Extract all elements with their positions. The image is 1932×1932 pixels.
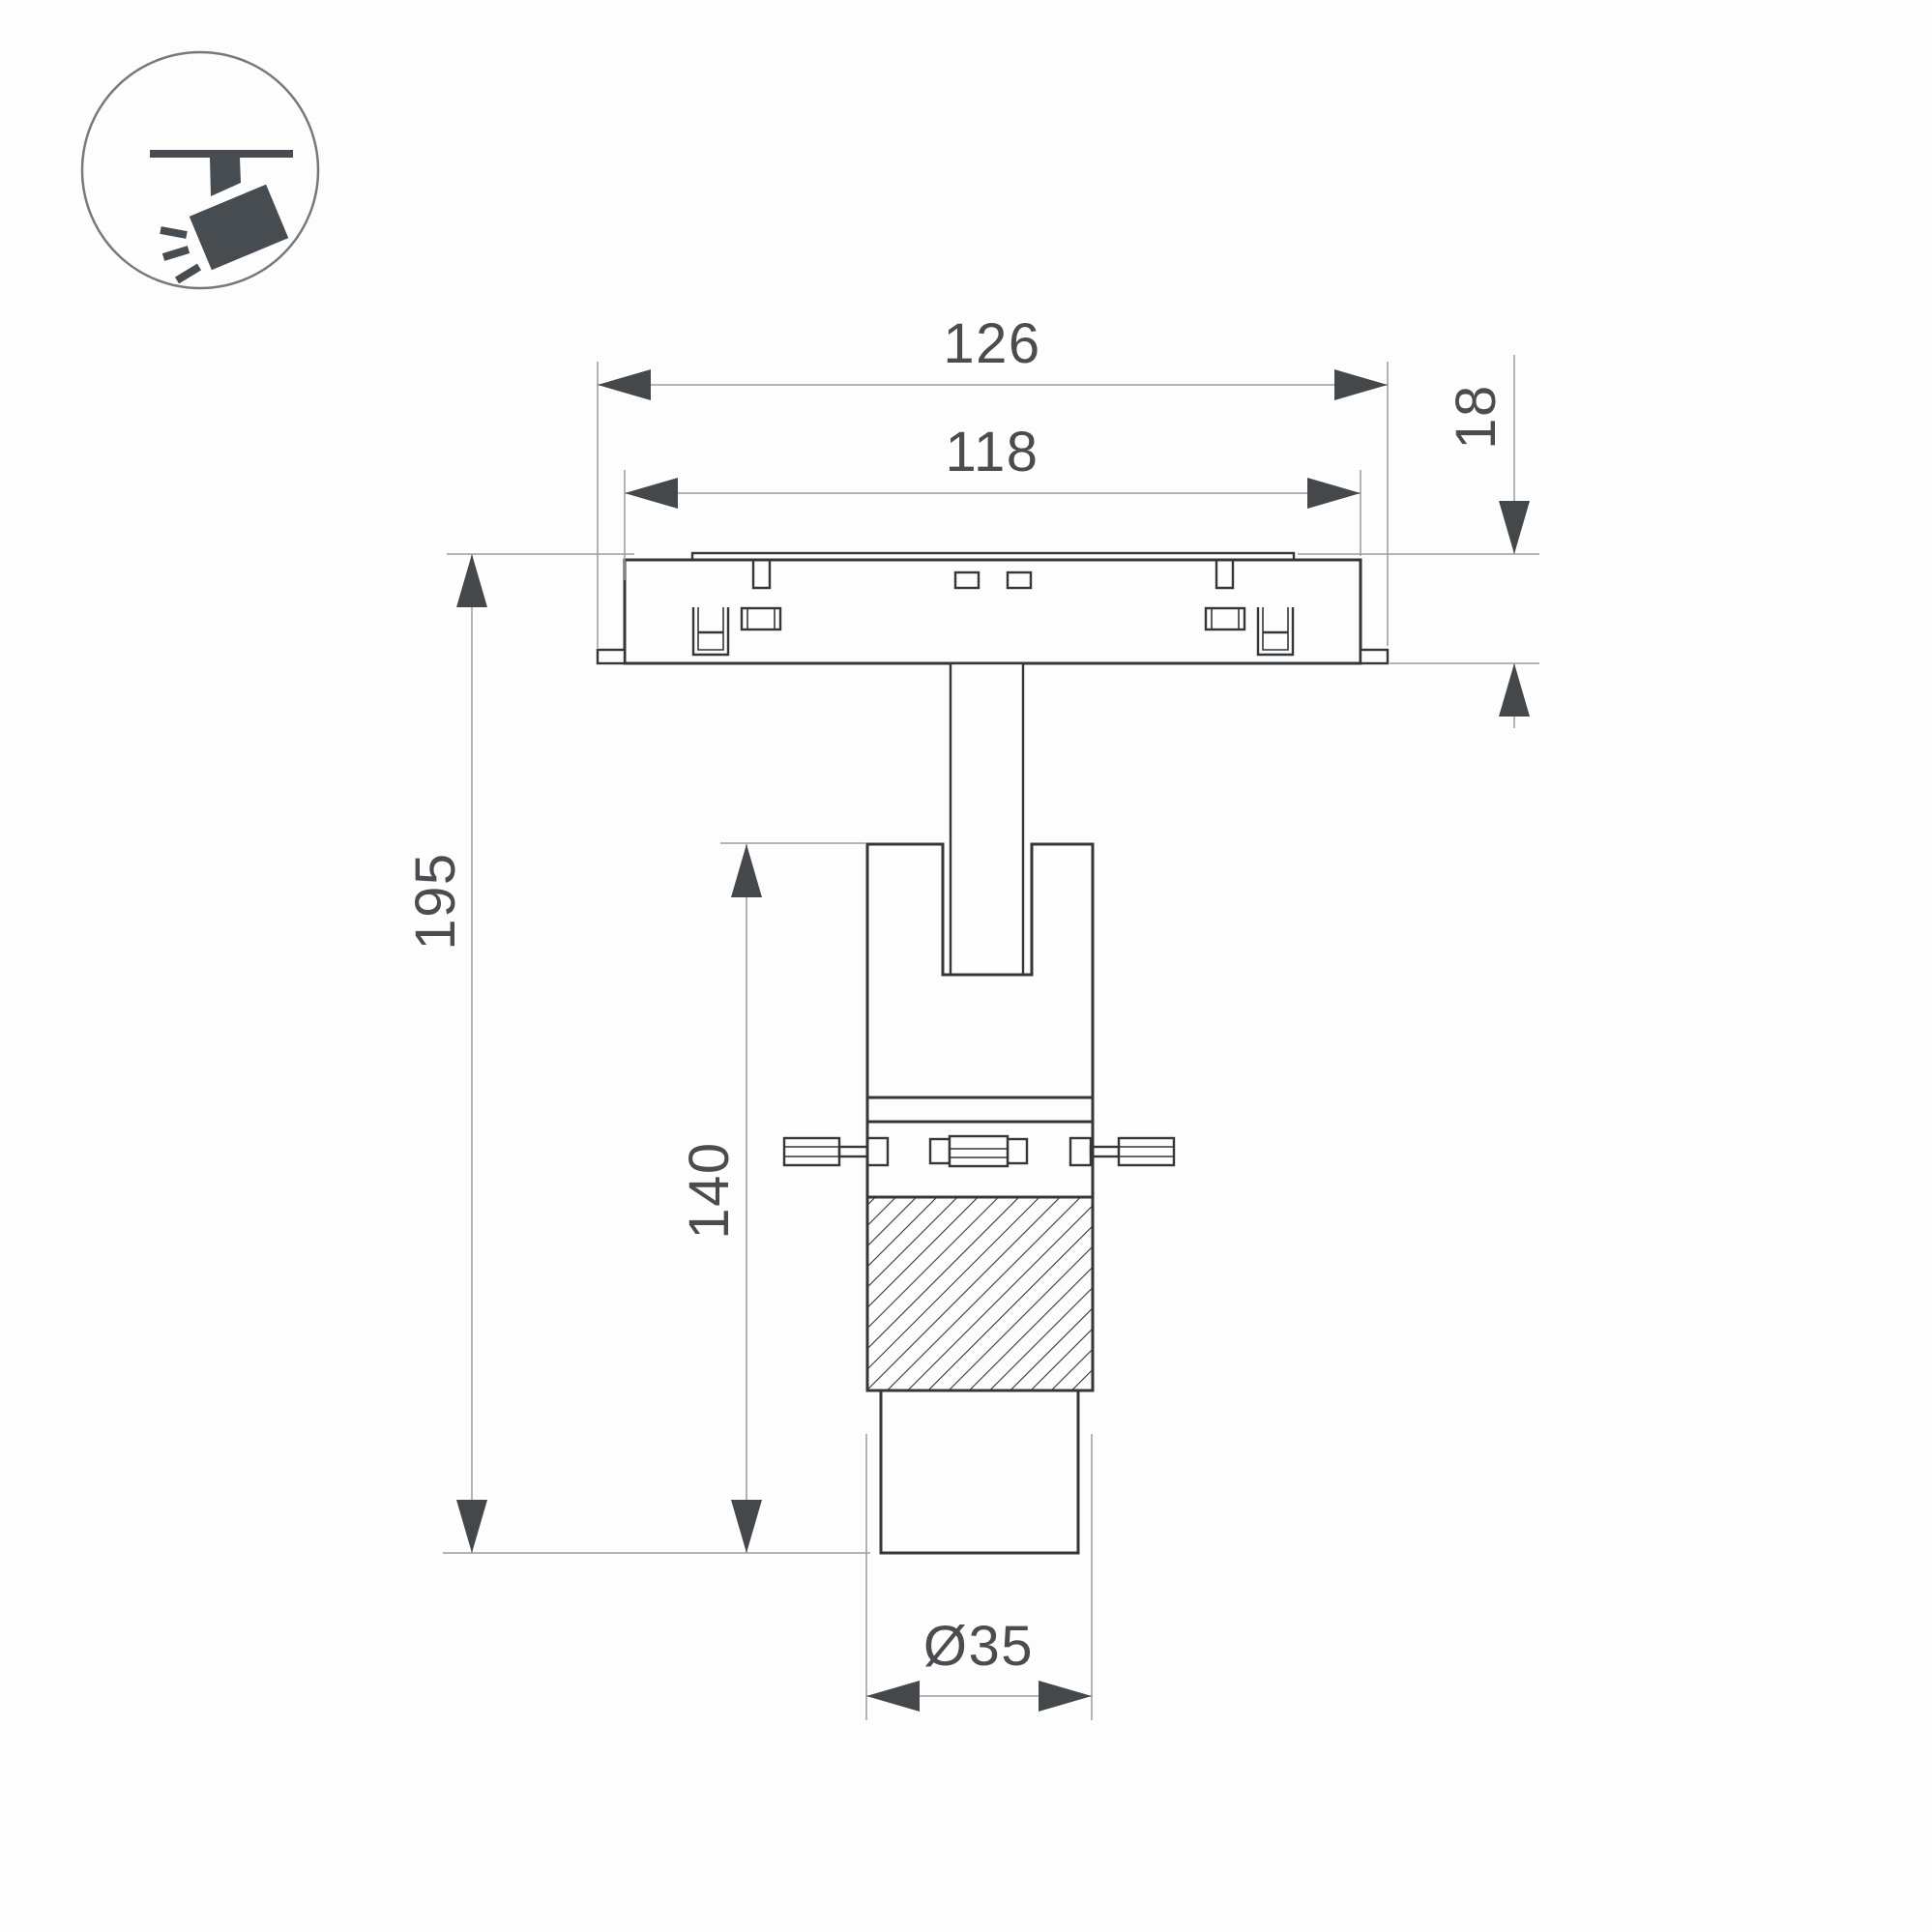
base-right-tab: [1361, 650, 1388, 663]
arrow-right: [1334, 369, 1388, 400]
dimension-label-d35: Ø35: [923, 1615, 1034, 1678]
arrow-up: [1499, 663, 1530, 717]
arrow-right: [1307, 478, 1361, 509]
arrow-down: [731, 1500, 762, 1553]
screw-plate: [1070, 1138, 1091, 1165]
track-spotlight-icon: [82, 52, 318, 288]
screw-shaft: [839, 1147, 867, 1156]
icon-light-ray: [161, 230, 187, 235]
arrow-left: [866, 1681, 920, 1712]
dimension-total-height: 195: [404, 554, 870, 1553]
arrow-left: [625, 478, 678, 509]
terminal-cap-right: [1008, 1139, 1027, 1163]
dimension-body-height: 140: [678, 843, 865, 1553]
dimension-label-126: 126: [943, 312, 1040, 375]
center-terminal: [930, 1136, 1027, 1166]
arrow-up: [456, 554, 487, 607]
base-left-tab: [598, 650, 625, 663]
stem: [951, 663, 1023, 975]
icon-track-bar: [150, 150, 293, 158]
lamp-knurled-section: [867, 1197, 1093, 1390]
dimension-label-18: 18: [1445, 384, 1508, 450]
screw-shaft: [1091, 1147, 1119, 1156]
dimension-base-height: 18: [1298, 355, 1539, 728]
track-base-view: [598, 553, 1388, 663]
arrow-left: [598, 369, 651, 400]
arrow-right: [1039, 1681, 1092, 1712]
left-adjustment-screw: [784, 1138, 888, 1165]
technical-drawing-page: 126 118 18 195 140: [0, 0, 1932, 1932]
dimension-label-118: 118: [946, 421, 1039, 483]
arrow-down: [1499, 501, 1530, 554]
base-body: [625, 560, 1361, 663]
screw-plate: [867, 1138, 888, 1165]
screw-head: [784, 1138, 839, 1165]
right-adjustment-screw: [1070, 1138, 1174, 1165]
icon-badge-circle: [82, 52, 318, 288]
terminal-body: [950, 1136, 1008, 1166]
dimension-label-195: 195: [404, 852, 467, 950]
arrow-up: [731, 844, 762, 897]
terminal-cap-left: [930, 1139, 950, 1163]
arrow-down: [456, 1500, 487, 1553]
dimension-label-140: 140: [678, 1141, 741, 1239]
lamp-lower-cylinder: [881, 1390, 1078, 1553]
screw-head: [1119, 1138, 1174, 1165]
spotlight-dimension-drawing: 126 118 18 195 140: [0, 0, 1932, 1932]
